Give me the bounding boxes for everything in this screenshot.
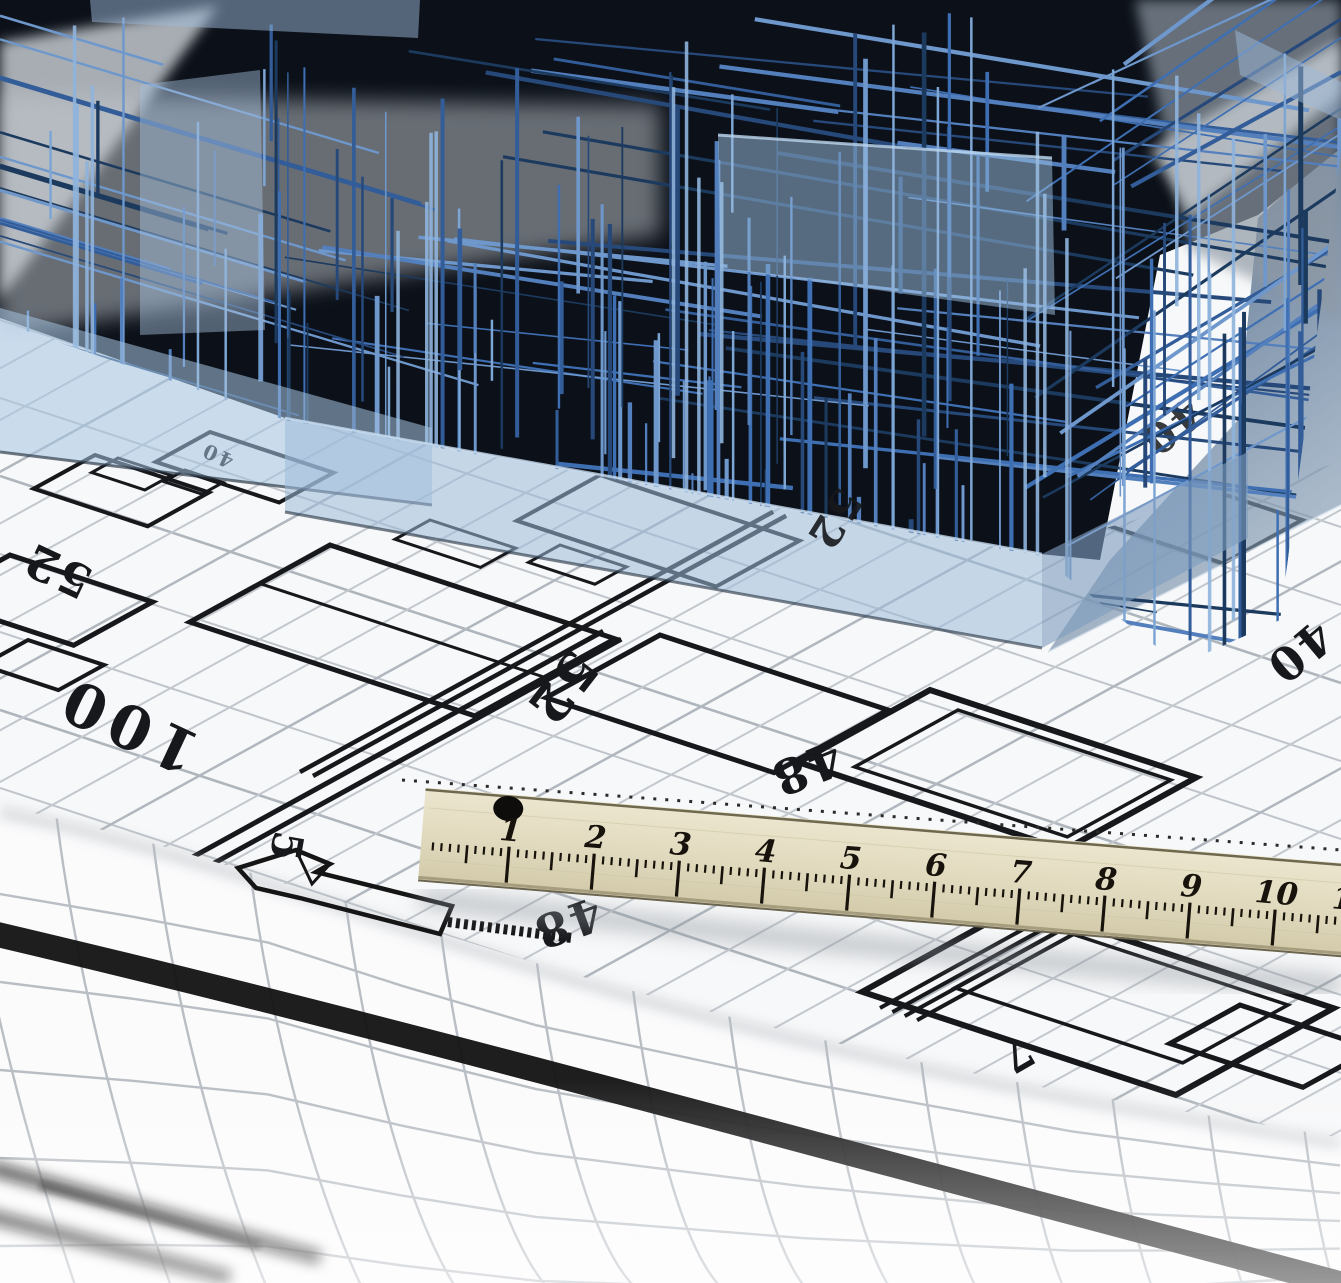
ruler-minor-tick (1003, 889, 1004, 897)
ruler-minor-tick (628, 859, 629, 867)
defocus-veil (0, 1080, 1341, 1283)
ruler-minor-tick (484, 847, 485, 855)
ruler-number-3: 3 (668, 826, 692, 864)
ruler-minor-tick (730, 867, 731, 875)
ruler-minor-tick (747, 868, 748, 876)
ruler-minor-tick (816, 874, 817, 882)
ruler-half-tick (721, 866, 722, 884)
ruler-minor-tick (492, 847, 493, 855)
blueprint-scene: 5210052484040 40 52 (0, 0, 1341, 1283)
ruler-number-5: 5 (839, 840, 863, 878)
ruler-half-tick (806, 873, 807, 891)
ruler-minor-tick (543, 852, 544, 860)
ruler-minor-tick (662, 861, 663, 869)
ruler-minor-tick (1224, 908, 1225, 916)
ruler-half-tick (891, 880, 892, 898)
ruler-number-8: 8 (1093, 861, 1118, 899)
ruler-minor-tick (1113, 898, 1114, 906)
ruler-minor-tick (739, 868, 740, 876)
ruler-minor-tick (799, 873, 800, 881)
ruler-number-9: 9 (1179, 868, 1203, 906)
ruler-minor-tick (1096, 897, 1097, 905)
ruler-minor-tick (918, 882, 919, 890)
ruler-minor-tick (994, 889, 995, 897)
ruler-minor-tick (433, 842, 434, 850)
ruler-minor-tick (1258, 910, 1259, 918)
ruler-half-tick (636, 859, 637, 877)
ruler-minor-tick (875, 879, 876, 887)
ruler-minor-tick (671, 862, 672, 870)
ruler-minor-tick (1182, 904, 1183, 912)
ruler-number-10: 10 (1253, 874, 1299, 913)
ruler-half-tick (1317, 915, 1318, 933)
ruler-half-tick (1147, 901, 1148, 919)
ruler-minor-tick (577, 854, 578, 862)
ruler-minor-tick (1054, 894, 1055, 902)
ruler-number-4: 4 (754, 833, 778, 871)
ruler-minor-tick (1037, 892, 1038, 900)
ruler-half-tick (1062, 894, 1063, 912)
ruler-minor-tick (1267, 911, 1268, 919)
ruler-minor-tick (1335, 917, 1336, 925)
ruler-minor-tick (654, 861, 655, 869)
ruler-number-1: 1 (498, 812, 522, 850)
ruler-minor-tick (858, 877, 859, 885)
ruler-minor-tick (986, 888, 987, 896)
ruler-minor-tick (645, 860, 646, 868)
ruler-minor-tick (611, 857, 612, 865)
glass-column-panel (140, 70, 265, 335)
ruler-minor-tick (1216, 907, 1217, 915)
ruler-minor-tick (1011, 890, 1012, 898)
ruler-minor-tick (884, 880, 885, 888)
ruler-minor-tick (1156, 902, 1157, 910)
ruler-half-tick (551, 852, 552, 870)
ruler-minor-tick (1122, 899, 1123, 907)
ruler-minor-tick (1088, 896, 1089, 904)
ruler-minor-tick (952, 885, 953, 893)
ruler-number-2: 2 (582, 819, 607, 857)
ruler-number-6: 6 (924, 847, 948, 885)
ruler-minor-tick (1173, 903, 1174, 911)
ruler-half-tick (1232, 908, 1233, 926)
ruler-minor-tick (1079, 896, 1080, 904)
ruler-minor-tick (969, 887, 970, 895)
ruler-minor-tick (450, 844, 451, 852)
ruler-minor-tick (1045, 893, 1046, 901)
ruler-minor-tick (1309, 915, 1310, 923)
ruler-minor-tick (705, 865, 706, 873)
ruler-minor-tick (688, 863, 689, 871)
ruler-minor-tick (501, 848, 502, 856)
ruler-minor-tick (1250, 910, 1251, 918)
ruler-minor-tick (518, 849, 519, 857)
ruler-minor-tick (782, 871, 783, 879)
ruler-half-tick (466, 845, 467, 863)
ruler-minor-tick (603, 856, 604, 864)
ruler-minor-tick (560, 853, 561, 861)
ruler-minor-tick (458, 845, 459, 853)
ruler-minor-tick (1028, 891, 1029, 899)
ruler-minor-tick (1292, 913, 1293, 921)
ruler-minor-tick (756, 869, 757, 877)
ruler-minor-tick (1071, 895, 1072, 903)
ruler-minor-tick (1165, 903, 1166, 911)
ruler-minor-tick (475, 846, 476, 854)
ruler-minor-tick (620, 858, 621, 866)
ruler-minor-tick (960, 886, 961, 894)
ruler-minor-tick (1139, 901, 1140, 909)
ruler-minor-tick (943, 884, 944, 892)
ruler-number-11: 11 (1331, 880, 1341, 919)
ruler-minor-tick (790, 872, 791, 880)
ruler-minor-tick (1207, 906, 1208, 914)
ruler-minor-tick (535, 851, 536, 859)
ruler-minor-tick (833, 875, 834, 883)
ruler-minor-tick (909, 882, 910, 890)
ruler-minor-tick (713, 866, 714, 874)
ruler-number-7: 7 (1009, 854, 1034, 892)
ruler-minor-tick (586, 855, 587, 863)
ruler-minor-tick (824, 875, 825, 883)
ruler-minor-tick (569, 854, 570, 862)
ruler-minor-tick (841, 876, 842, 884)
ruler-minor-tick (1301, 914, 1302, 922)
ruler-minor-tick (526, 850, 527, 858)
ruler-minor-tick (696, 864, 697, 872)
ruler-half-tick (976, 887, 977, 905)
ruler-minor-tick (926, 883, 927, 891)
ruler-minor-tick (1284, 912, 1285, 920)
ruler-minor-tick (1326, 916, 1327, 924)
ruler-minor-tick (1241, 909, 1242, 917)
ruler-minor-tick (1199, 905, 1200, 913)
ruler-minor-tick (867, 878, 868, 886)
scene-canvas: 5210052484040 40 52 (0, 0, 1341, 1283)
ruler-minor-tick (901, 881, 902, 889)
ruler-minor-tick (441, 843, 442, 851)
ruler-minor-tick (1130, 900, 1131, 908)
ruler-minor-tick (773, 870, 774, 878)
